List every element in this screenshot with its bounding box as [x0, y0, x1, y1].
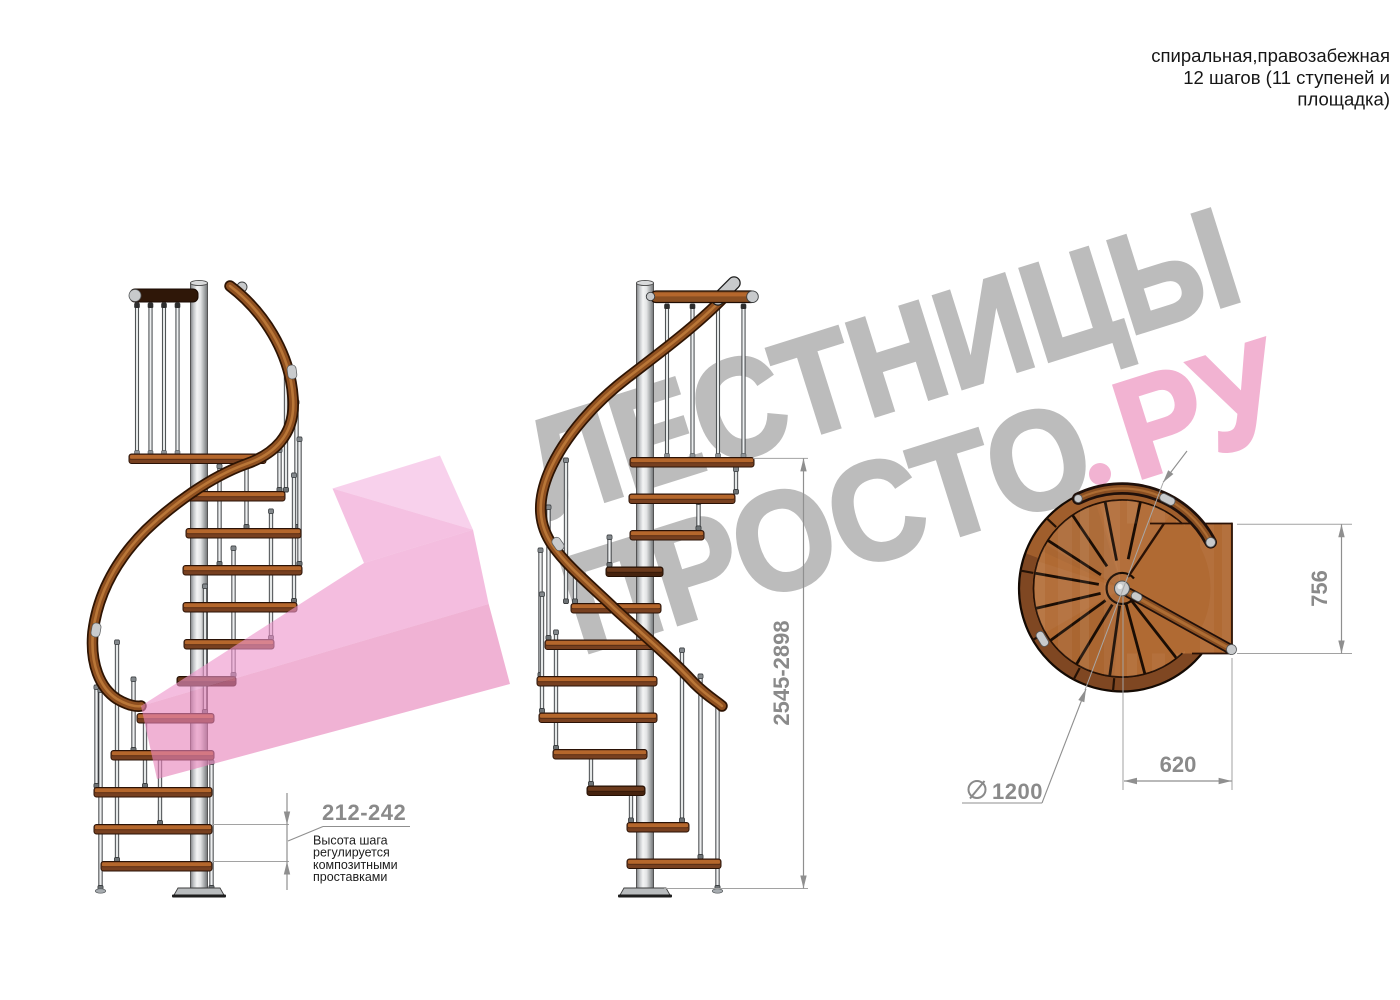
svg-text:площадка): площадка): [1297, 89, 1390, 110]
svg-text:12 шагов (11 ступеней и: 12 шагов (11 ступеней и: [1183, 67, 1390, 88]
svg-text:спиральная,правозабежная: спиральная,правозабежная: [1151, 45, 1390, 66]
svg-text:проставками: проставками: [313, 870, 387, 884]
svg-text:620: 620: [1160, 752, 1197, 777]
svg-text:212-242: 212-242: [322, 800, 406, 825]
svg-text:2545-2898: 2545-2898: [769, 620, 794, 725]
svg-text:1200: 1200: [992, 779, 1043, 804]
svg-text:756: 756: [1307, 570, 1332, 607]
